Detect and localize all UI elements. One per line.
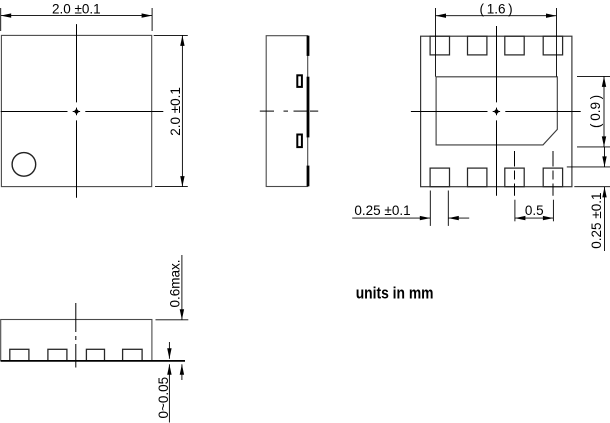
svg-text:0.25 ±0.1: 0.25 ±0.1 [589, 192, 604, 248]
svg-text:2.0 ±0.1: 2.0 ±0.1 [52, 1, 101, 16]
svg-text:2.0 ±0.1: 2.0 ±0.1 [168, 87, 183, 136]
svg-text:( 0.9 ): ( 0.9 ) [588, 95, 603, 128]
svg-text:0.6max.: 0.6max. [167, 259, 182, 307]
svg-text:( 1.6 ): ( 1.6 ) [480, 1, 513, 16]
svg-text:0~0.05: 0~0.05 [156, 377, 171, 419]
svg-text:0.5: 0.5 [525, 203, 544, 218]
svg-text:units in mm: units in mm [356, 285, 434, 303]
svg-text:0.25 ±0.1: 0.25 ±0.1 [354, 203, 410, 218]
